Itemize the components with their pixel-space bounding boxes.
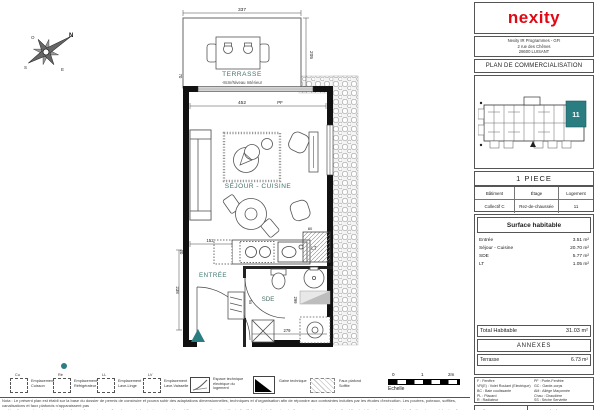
- legend-tag: LV: [147, 373, 153, 377]
- site-plan-unit-label: 11: [572, 112, 580, 119]
- site-plan: 11: [478, 79, 590, 165]
- dim-337-label: 337: [238, 7, 246, 13]
- plan-sheet: N O S E TERRASSE -8cm/Niveau Intérieur: [0, 0, 600, 410]
- toilet: [271, 269, 286, 289]
- abbrev-item: VR(E) : Volet Roulant (Electrique): [477, 384, 534, 389]
- abbreviation-legend: F : Fenêtre VR(E) : Volet Roulant (Elect…: [474, 377, 594, 403]
- beanbag-1: [287, 130, 311, 155]
- surface-row-label: Entrée: [479, 238, 493, 243]
- unit-table-header: Bâtiment: [475, 187, 515, 200]
- legend-tag: Ré: [57, 373, 64, 377]
- unit-table-header: Étage: [515, 187, 559, 200]
- annex-row: Terrasse 6.73 m²: [477, 354, 591, 366]
- terrace-label: TERRASSE: [222, 71, 262, 78]
- dim-452: [190, 103, 326, 109]
- wall-left: [183, 86, 189, 347]
- total-row: Total Habitable 31.03 m²: [477, 325, 591, 337]
- dim-205-label: 205: [308, 51, 314, 59]
- indice: Indice : B: [475, 406, 528, 410]
- surface-row-value: 5.77 m²: [573, 254, 589, 259]
- technical-duct-symbol: [253, 376, 275, 394]
- dim-95-label: 95: [248, 300, 253, 305]
- entrance-arrow-icon: [191, 329, 205, 342]
- wall-partition-h: [245, 266, 333, 269]
- annex-value: 6.73 m²: [571, 357, 588, 363]
- surface-row: Entrée 3.51 m²: [477, 236, 591, 244]
- floor-plan: N O S E TERRASSE -8cm/Niveau Intérieur: [0, 0, 470, 358]
- washbasin: [304, 267, 324, 288]
- dining-table: [222, 194, 279, 238]
- compass-e-label: E: [61, 67, 64, 72]
- terrace: TERRASSE -8cm/Niveau Intérieur: [183, 18, 301, 88]
- unit-type-title: 1 PIECE: [474, 171, 594, 186]
- dim-70-label: 70: [178, 74, 183, 79]
- doc-title: PLAN DE COMMERCIALISATION: [474, 59, 594, 73]
- water-heater: [252, 320, 274, 342]
- fridge-emplacement-symbol: [53, 378, 71, 393]
- exterior-pebble-band-right: [333, 76, 358, 345]
- sofa: [190, 130, 211, 220]
- scale-tick-label: 1: [421, 372, 424, 377]
- surface-row: LT 1.05 m²: [477, 260, 591, 268]
- electrical-space-symbol: [190, 377, 210, 393]
- address-box: Nexity IR Programmes - GFI 2 rue des Chê…: [474, 36, 594, 57]
- dim-238-label: 238: [175, 286, 180, 294]
- unit-table-value: Collectif C: [475, 200, 515, 213]
- surface-row-value: 1.05 m²: [573, 262, 589, 267]
- unit-table-value: 11: [559, 200, 593, 213]
- dim-80-label: 80: [308, 226, 313, 231]
- scale-label: Echelle: [388, 386, 460, 392]
- surface-row-value: 20.70 m²: [570, 246, 589, 251]
- compass-n-label: N: [69, 33, 73, 39]
- surface-row-label: Séjour - Cuisine: [479, 246, 513, 251]
- disclaimer: Nota : Le présent plan est établi sur la…: [2, 399, 468, 410]
- abbrev-item: SS : Sèche Serviette: [534, 398, 591, 403]
- dim-279-label: 279: [284, 328, 292, 333]
- total-value: 31.03 m²: [566, 328, 588, 334]
- annexes-title: ANNEXES: [477, 339, 591, 352]
- scale-tick-label: 0: [392, 372, 395, 377]
- window-right: [327, 125, 333, 175]
- annex-label: Terrasse: [480, 357, 499, 363]
- legend-tag: LL: [101, 373, 107, 377]
- meta-row: Indice : B Date : 11/09/2024: [474, 405, 594, 410]
- sde-label: SDE: [262, 296, 275, 303]
- entree-label: ENTRÉE: [199, 272, 227, 279]
- lt-closet: LT: [303, 232, 330, 262]
- soffit-wedge: [300, 291, 330, 304]
- surface-table: Surface habitable Entrée 3.51 m² Séjour …: [474, 214, 594, 375]
- lt-label: LT: [311, 246, 316, 252]
- date: Date : 11/09/2024: [528, 406, 593, 410]
- unit-table-header: Logement: [559, 187, 593, 200]
- surface-table-title: Surface habitable: [477, 217, 591, 233]
- dim-124-label: 124: [326, 247, 331, 254]
- highlight-dot-icon: [61, 363, 67, 369]
- washer-emplacement: [300, 317, 330, 343]
- site-plan-box: 11: [474, 75, 594, 169]
- compass-icon: N O S E: [18, 21, 81, 79]
- legend-label: Espace technique électrique du logement: [213, 377, 249, 391]
- address-line: 28600 LUISANT: [519, 49, 550, 54]
- unit-table: Bâtiment Étage Logement Collectif C Rez-…: [474, 186, 594, 212]
- abbrev-item: R : Radiateur: [477, 398, 534, 403]
- surface-row-value: 3.51 m²: [573, 238, 589, 243]
- scale-bar: 0 1 2m Echelle: [388, 372, 460, 396]
- dim-299-label: 299: [293, 297, 298, 305]
- dim-452-label: 452: [238, 100, 246, 106]
- sejour-label: SÉJOUR - CUISINE: [225, 181, 292, 190]
- scale-rule: [388, 379, 460, 385]
- nexity-logo: nexity: [508, 8, 560, 28]
- terrace-table: [207, 37, 269, 69]
- tv-console: [309, 132, 318, 172]
- false-ceiling-symbol: [310, 378, 335, 393]
- legend-tag: Cu: [14, 373, 21, 377]
- wall-partition-v-bottom: [243, 318, 246, 347]
- legend-label: Gaine technique: [279, 379, 309, 384]
- surface-row: Séjour - Cuisine 20.70 m²: [477, 244, 591, 252]
- washer-emplacement-symbol: [97, 378, 115, 393]
- logo-box: nexity: [474, 2, 594, 34]
- kitchen-counter: [214, 240, 310, 264]
- compass-o-label: O: [31, 35, 35, 40]
- compass-s-label: S: [24, 65, 27, 70]
- wall-partition-v-top: [243, 266, 246, 278]
- dim-152-label: 152: [206, 238, 214, 243]
- total-label: Total Habitable: [480, 328, 517, 334]
- pf-label: PF: [277, 100, 283, 105]
- window-pf-top: [198, 87, 313, 92]
- legend-label: Faux plafond Soffite: [339, 379, 369, 388]
- surface-row-label: SDE: [479, 254, 489, 259]
- surface-row-label: LT: [479, 262, 484, 267]
- dishwasher-emplacement-symbol: [143, 378, 161, 393]
- beanbag-2: [289, 199, 312, 223]
- scale-tick-label: 2m: [448, 372, 454, 377]
- rug: [224, 133, 280, 181]
- electrical-panel: [228, 292, 244, 319]
- cooking-emplacement-symbol: [10, 378, 28, 393]
- dim-20-label: 20: [179, 250, 184, 255]
- info-panel: nexity Nexity IR Programmes - GFI 2 rue …: [474, 2, 596, 410]
- terrace-note: -8cm/Niveau Intérieur: [222, 80, 263, 85]
- surface-row: SDE 5.77 m²: [477, 252, 591, 260]
- unit-table-value: Rez-de-chaussée: [515, 200, 559, 213]
